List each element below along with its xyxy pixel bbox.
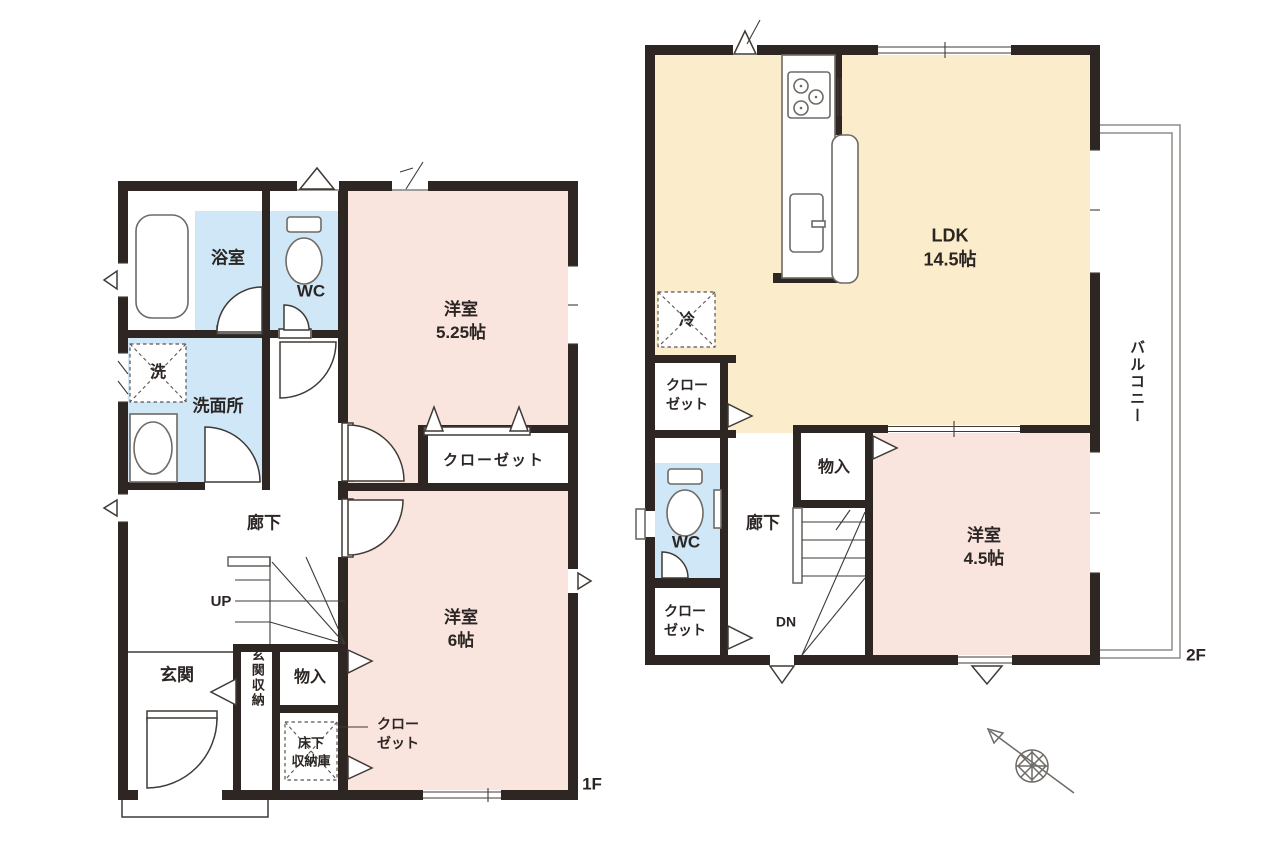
kitchen-island: [832, 135, 858, 283]
floor2-plan: [636, 20, 1180, 684]
faucet-icon: [812, 221, 825, 227]
toilet-icon-1f: [286, 217, 322, 284]
label-washroom: 洗面所: [193, 396, 244, 419]
floorplan-canvas: 浴室 WC 洗 洗面所 廊下 UP 玄関 玄関収納 物入 床下 収納庫 クロー …: [0, 0, 1280, 853]
label-wc-2f: WC: [672, 532, 700, 555]
label-closet-525: クローゼット: [443, 451, 545, 471]
label-closet-upper-2f: クロー ゼット: [666, 376, 708, 414]
label-floor-1f: 1F: [582, 774, 602, 797]
label-bedroom-45: 洋室 4.5帖: [964, 525, 1005, 571]
label-ldk: LDK 14.5帖: [923, 224, 976, 273]
label-hallway-2f: 廊下: [746, 513, 780, 536]
vent-triangle-bed6: [578, 573, 591, 589]
vent-triangle-wc-top: [300, 168, 334, 189]
label-balcony: バルコニー: [1126, 340, 1146, 425]
floorplan-drawing: [0, 0, 1280, 853]
label-storage-2f: 物入: [818, 457, 850, 479]
floor1-plan: [104, 162, 591, 817]
vent-triangle-hall: [104, 500, 117, 516]
label-stairs-dn: DN: [776, 613, 796, 632]
entrance-doorway: [138, 790, 222, 800]
label-closet-bed6: クロー ゼット: [377, 715, 419, 753]
label-hallway-1f: 廊下: [247, 513, 281, 536]
label-closet-lower-2f: クロー ゼット: [664, 602, 706, 640]
entrance-porch: [122, 800, 268, 817]
label-stairs-up: UP: [211, 592, 232, 612]
label-entrance-storage: 玄関収納: [248, 648, 266, 708]
label-bedroom-6: 洋室 6帖: [444, 607, 478, 653]
label-bedroom-525: 洋室 5.25帖: [436, 299, 486, 345]
wc2-window-box: [636, 509, 645, 539]
label-storage-1f: 物入: [294, 667, 326, 689]
label-bathroom: 浴室: [211, 248, 245, 271]
wc2-top-strip: [655, 438, 720, 463]
vent-triangle-bed45: [972, 666, 1002, 684]
vent-triangle-hall2: [770, 666, 794, 683]
label-wc-1f: WC: [297, 281, 325, 304]
vent-triangle-bath: [104, 271, 117, 289]
label-laundry: 洗: [150, 362, 166, 384]
compass-icon: [988, 729, 1074, 793]
label-floor-2f: 2F: [1186, 645, 1206, 668]
label-entrance: 玄関: [160, 665, 194, 688]
vanity-sink-icon: [130, 414, 177, 482]
label-fridge: 冷: [679, 310, 695, 332]
bathtub-icon: [136, 215, 188, 318]
label-underfloor-storage: 床下 収納庫: [291, 734, 330, 769]
